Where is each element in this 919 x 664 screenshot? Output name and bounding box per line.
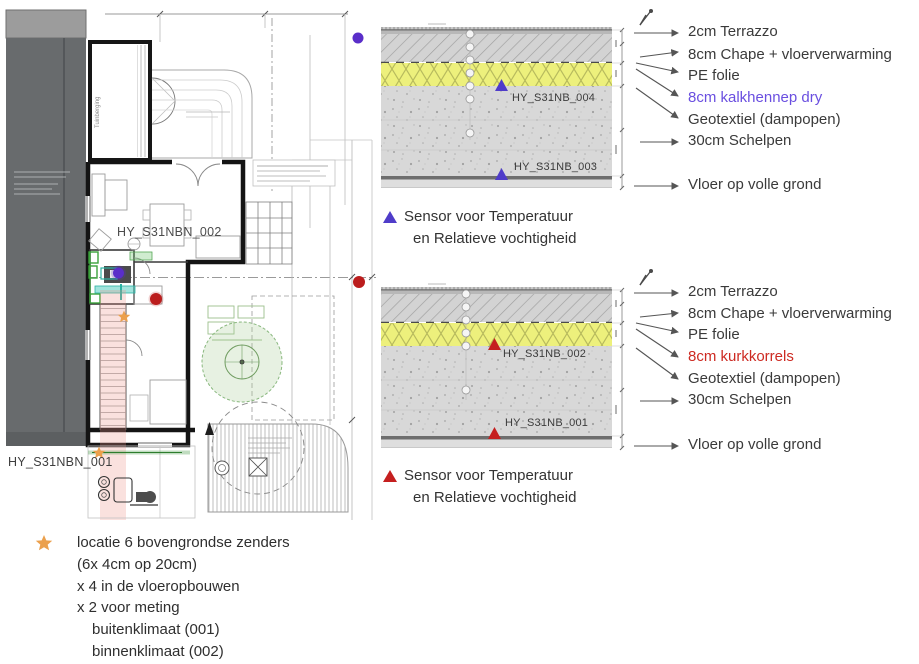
- transmitters-legend-line-2: (6x 4cm op 20cm): [77, 556, 197, 573]
- layer-label-pe-folie-2: PE folie: [688, 326, 740, 343]
- section-top-drawing: [353, 9, 679, 223]
- pen-icon: [640, 9, 653, 25]
- adjacent-building-band: [6, 10, 86, 446]
- sensor-tag-001: HY_S31NB_001: [505, 417, 588, 430]
- deck-terrace: [205, 402, 348, 512]
- layer-label-terrazzo-2: 2cm Terrazzo: [688, 283, 778, 300]
- floor-plan: Tuinberging: [6, 10, 376, 520]
- layer-label-vloer-2: Vloer op volle grond: [688, 436, 821, 453]
- pen-icon-2: [640, 269, 653, 285]
- entrance-doors: [176, 164, 220, 186]
- legend-top-line2: en Relatieve vochtigheid: [413, 230, 576, 247]
- layer-label-kalkhennep: 8cm kalkhennep dry: [688, 89, 822, 106]
- transmitters-legend-line-5: buitenklimaat (001): [92, 621, 220, 638]
- layer-label-terrazzo-1: 2cm Terrazzo: [688, 23, 778, 40]
- layer-label-kurkkorrels: 8cm kurkkorrels: [688, 348, 794, 365]
- layer-label-vloer-1: Vloer op volle grond: [688, 176, 821, 193]
- section-bottom-dim-strip: [612, 288, 624, 450]
- transmitters-legend-line-1: locatie 6 bovengrondse zenders: [77, 534, 290, 551]
- transmitters-legend-line-3: x 4 in de vloeropbouwen: [77, 578, 240, 595]
- transmitter-legend-star: [36, 535, 52, 550]
- garden: [202, 296, 334, 420]
- note-box: [253, 160, 335, 186]
- layer-label-chape-2: 8cm Chape + vloerverwarming: [688, 305, 892, 322]
- sensor-tag-003: HY_S31NB_003: [514, 161, 597, 174]
- stair-shaft-tint: [100, 290, 126, 520]
- layer-label-pe-folie-1: PE folie: [688, 67, 740, 84]
- legend-triangle-red: [383, 470, 397, 482]
- sensor-location-dot-red: [150, 293, 162, 305]
- section-top-arrows: [634, 33, 678, 186]
- legend-bottom-line1: Sensor voor Temperatuur: [404, 467, 573, 484]
- layer-label-schelpen-2: 30cm Schelpen: [688, 391, 791, 408]
- layer-label-geotextiel-1: Geotextiel (dampopen): [688, 111, 841, 128]
- legend-triangle-purple: [383, 211, 397, 223]
- layer-label-chape-1: 8cm Chape + vloerverwarming: [688, 46, 892, 63]
- plan-room-label-upper: HY_S31NBN_002: [117, 225, 222, 239]
- pergola-grid: [246, 202, 292, 264]
- section-bottom-drawing: [353, 269, 678, 482]
- transmitters-legend-line-4: x 2 voor meting: [77, 599, 180, 616]
- transmitters-legend-line-6: binnenklimaat (002): [92, 643, 224, 660]
- garden-shed: Tuinberging: [90, 42, 175, 160]
- section-bottom-arrows: [634, 293, 678, 446]
- section-bottom-marker-dot: [353, 276, 365, 288]
- sensor-location-dot-purple: [113, 268, 124, 279]
- sensor-tag-004: HY_S31NB_004: [512, 92, 595, 105]
- shed-label: Tuinberging: [95, 97, 101, 128]
- plan-room-label-lower: HY_S31NBN_001: [8, 455, 113, 469]
- legend-bottom-line2: en Relatieve vochtigheid: [413, 489, 576, 506]
- diagram-page: Tuinberging: [0, 0, 919, 664]
- layer-label-schelpen-1: 30cm Schelpen: [688, 132, 791, 149]
- section-top-dim-strip: [612, 28, 624, 190]
- section-top-marker-dot: [353, 33, 364, 44]
- legend-top-line1: Sensor voor Temperatuur: [404, 208, 573, 225]
- sensor-tag-002: HY_S31NB_002: [503, 348, 586, 361]
- layer-label-geotextiel-2: Geotextiel (dampopen): [688, 370, 841, 387]
